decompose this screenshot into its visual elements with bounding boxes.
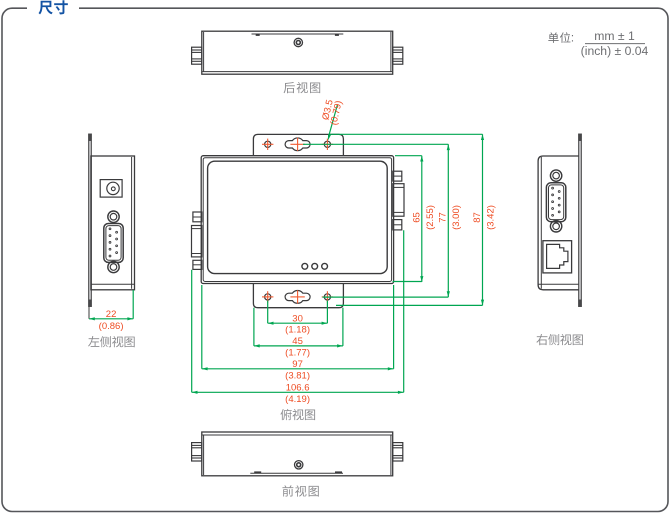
svg-text:(3.81): (3.81) bbox=[285, 370, 310, 381]
svg-text:22: 22 bbox=[106, 309, 117, 320]
svg-text:106.6: 106.6 bbox=[286, 383, 310, 394]
svg-text::: : bbox=[571, 33, 574, 45]
svg-text:45: 45 bbox=[292, 336, 303, 347]
svg-text:(inch) ± 0.04: (inch) ± 0.04 bbox=[581, 44, 649, 58]
svg-text:97: 97 bbox=[292, 359, 303, 370]
svg-text:65: 65 bbox=[411, 212, 422, 223]
svg-text:(2.55): (2.55) bbox=[425, 205, 436, 230]
svg-text:(1.77): (1.77) bbox=[285, 348, 310, 359]
svg-text:30: 30 bbox=[292, 313, 303, 324]
svg-text:77: 77 bbox=[437, 212, 448, 223]
svg-text:(1.18): (1.18) bbox=[285, 324, 310, 335]
svg-text:mm ± 1: mm ± 1 bbox=[594, 29, 635, 43]
svg-text:(4.19): (4.19) bbox=[285, 394, 310, 405]
svg-text:(0.86): (0.86) bbox=[99, 321, 124, 332]
svg-text:(3.42): (3.42) bbox=[486, 205, 497, 230]
svg-text:87: 87 bbox=[472, 212, 483, 223]
svg-text:(3.00): (3.00) bbox=[451, 205, 462, 230]
